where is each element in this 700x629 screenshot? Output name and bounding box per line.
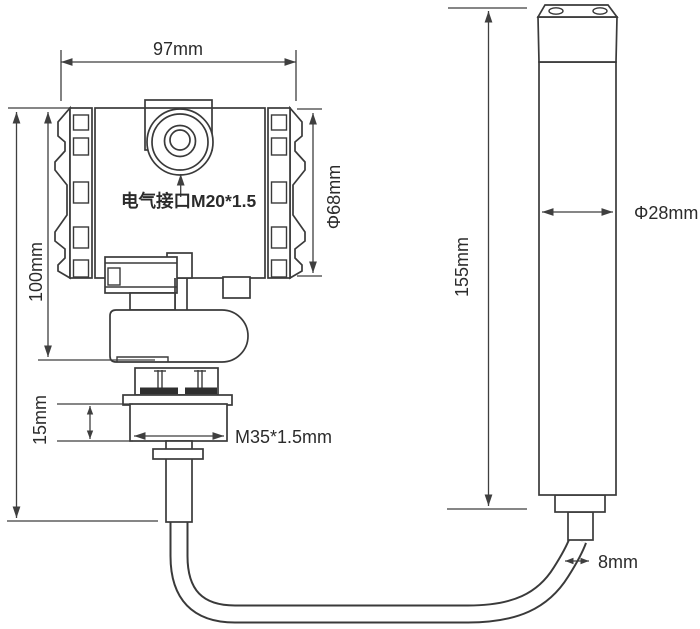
dim-label-probe-length: 155mm xyxy=(452,237,472,297)
diagram-canvas: 97mm 100mm 15mm Φ68mm xyxy=(0,0,700,629)
dim-label-nut-height: 15mm xyxy=(30,395,50,445)
bolt-head-left xyxy=(140,388,178,395)
stem-bracket xyxy=(130,293,175,310)
dim-label-head-height: 100mm xyxy=(26,242,46,302)
probe-bottom-connector xyxy=(568,512,593,540)
dim-label-thread-spec: M35*1.5mm xyxy=(235,427,332,447)
process-connection-pipe xyxy=(153,441,203,522)
probe-body xyxy=(539,62,616,495)
dim-label-cable-diameter: 8mm xyxy=(598,552,638,572)
dim-label-head-diameter: Φ68mm xyxy=(324,165,344,229)
transmitter-dimensional-drawing: 97mm 100mm 15mm Φ68mm xyxy=(0,0,700,629)
dim-head-diameter: Φ68mm xyxy=(297,109,344,276)
pipe-flange xyxy=(153,449,203,459)
probe-cap-top-face xyxy=(538,5,617,17)
connection-cable xyxy=(179,518,578,614)
head-left-cap-knurl xyxy=(55,108,70,278)
dim-head-width: 97mm xyxy=(61,39,296,101)
transmitter-head xyxy=(55,100,305,441)
probe-bottom-step xyxy=(555,495,605,512)
cable-entry-port xyxy=(147,109,213,175)
probe-cap xyxy=(538,17,617,62)
head-lower-assembly xyxy=(105,253,250,441)
capsule-body xyxy=(110,310,248,362)
dim-label-probe-diameter: Φ28mm xyxy=(634,203,698,223)
dim-nut-height: 15mm xyxy=(30,395,133,445)
head-right-cap-knurl xyxy=(290,108,305,278)
side-step-block xyxy=(223,277,250,298)
dim-probe-length: 155mm xyxy=(447,8,527,509)
dim-label-head-width: 97mm xyxy=(153,39,203,59)
label-electrical-port: 电气接口M20*1.5 xyxy=(121,191,256,211)
probe xyxy=(538,5,617,540)
bolt-head-right xyxy=(185,388,217,395)
